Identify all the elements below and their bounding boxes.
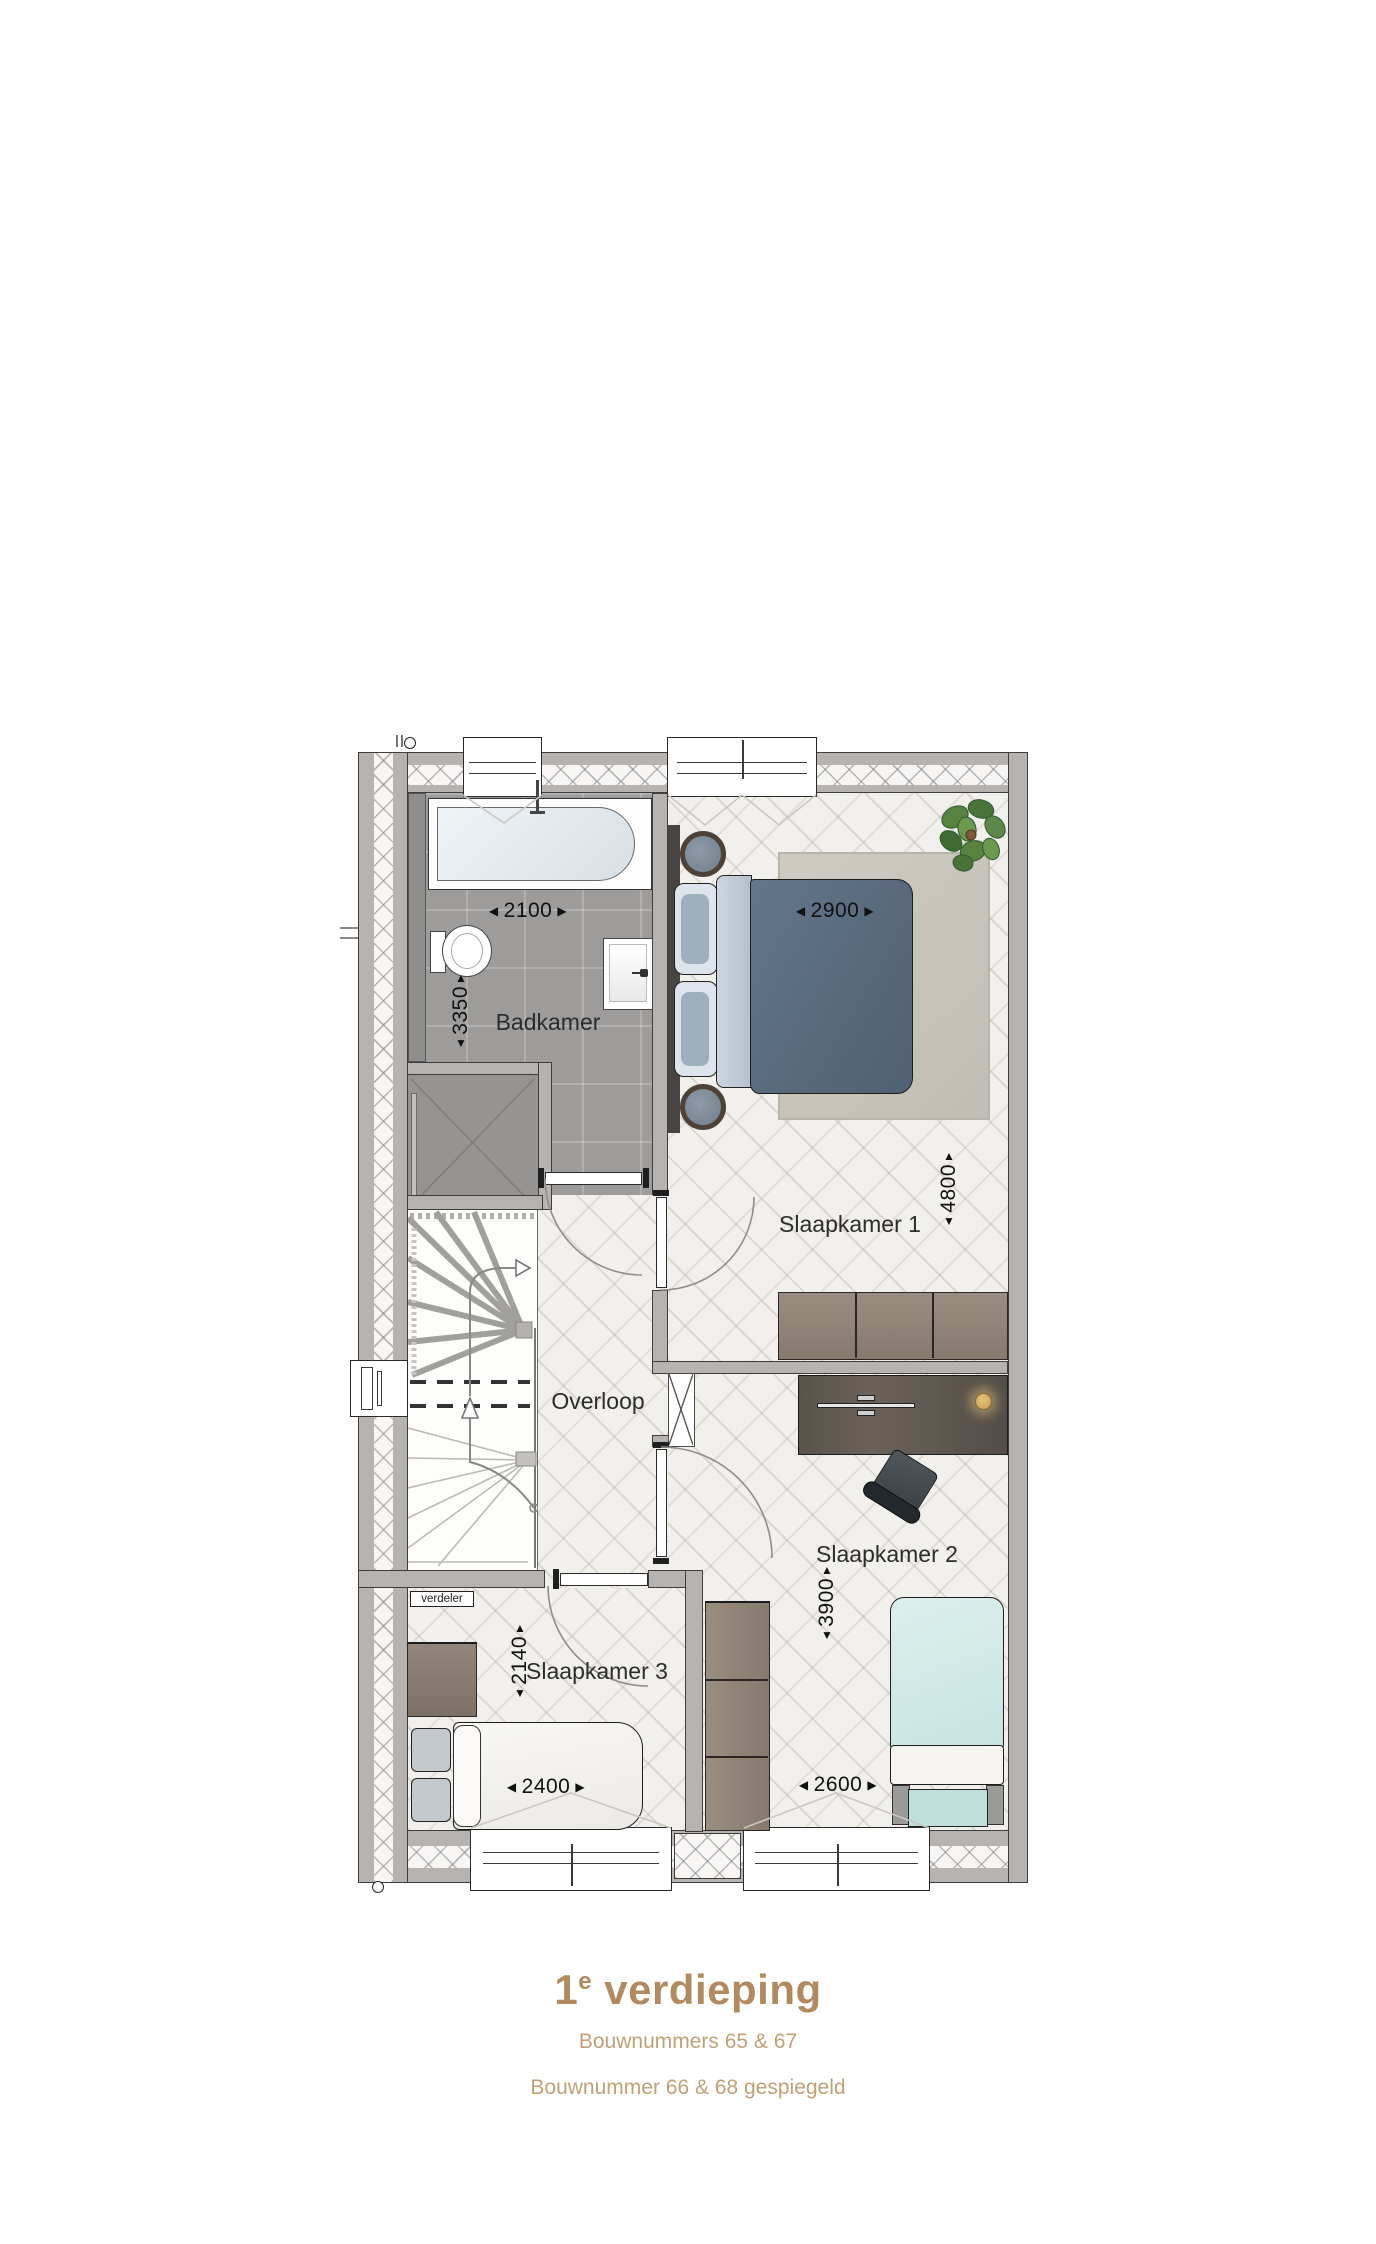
wardrobe-divider [855,1293,857,1358]
arrow-right-icon: ▶ [862,1778,882,1792]
subtitle-gespiegeld: Bouwnummer 66 & 68 gespiegeld [0,2076,1376,2100]
wall-shower-bottom [407,1195,543,1210]
tall-cabinet [705,1601,770,1831]
arrow-up-icon: ▲ [821,1565,833,1575]
dim-badkamer-width: ◀2100▶ [458,899,598,923]
arrow-down-icon: ▼ [455,1038,467,1048]
shower-diagonals-icon [407,1075,538,1210]
arrow-left-icon: ◀ [502,1780,522,1794]
plant-icon [933,795,1009,877]
door-badkamer [545,1172,642,1185]
stool [680,1084,726,1130]
page-title: 1e verdieping [0,1966,1376,2014]
verdeler-box: verdeler [410,1591,474,1607]
tick-mark [340,937,358,939]
wardrobe [778,1292,1008,1360]
wardrobe-divider [932,1293,934,1358]
stool [680,831,726,877]
door-jamb [538,1168,544,1188]
window-slaapkamer2 [743,1827,930,1891]
floor-plan: Badkamer Slaapkamer 1 Overloop Slaapkame… [358,735,1028,1907]
wall-badkamer-slaapkamer1 [652,793,668,1195]
pillow [674,981,718,1077]
shower-screen [411,1093,417,1197]
pillow-inner [681,894,709,964]
bathtub-basin [437,807,635,881]
door-slaapkamer2 [656,1449,667,1557]
window-mullion [742,740,744,778]
arrow-left-icon: ◀ [791,904,811,918]
caption: 1e verdieping Bouwnummers 65 & 67 Bouwnu… [0,1966,1376,2100]
dim-slaapkamer3-width: ◀2400▶ [476,1775,616,1799]
arrow-up-icon: ▲ [455,973,467,983]
desk-lamp-icon [975,1393,992,1410]
arrow-down-icon: ▼ [943,1216,955,1226]
shower-area [407,1062,552,1210]
sink-faucet-icon [632,972,642,974]
bed-sheet [716,875,752,1088]
bed-bench-post [986,1785,1004,1825]
bed-pillow [411,1778,451,1822]
dim-slaapkamer1-depth: ▲ 4800 ▼ [934,1151,964,1226]
window-mullion [571,1844,573,1886]
tick-mark [401,735,403,747]
bed-pillow [411,1728,451,1772]
door-slaapkamer3 [560,1573,648,1586]
wall-overloop-slaapkamer3 [358,1570,545,1588]
arrow-right-icon: ▶ [570,1780,590,1794]
wall-left [358,752,408,1883]
window-badkamer [463,737,542,797]
bed-duvet [890,1597,1004,1749]
arrow-up-icon: ▲ [514,1623,526,1633]
wall [407,1062,543,1075]
wall-pier [674,1833,741,1879]
wall-right [1008,752,1028,1883]
bed-headboard [668,825,680,1133]
survey-marker [404,737,416,749]
dim-badkamer-depth: ▲ 3350 ▼ [446,973,476,1048]
window-frame-line [469,762,537,763]
dim-slaapkamer2-depth: ▲ 3900 ▼ [812,1565,842,1640]
survey-marker [372,1881,384,1893]
sink [603,938,653,1010]
desk-handle [857,1395,875,1401]
arrow-right-icon: ▶ [552,904,572,918]
wall-slaapkamer2-slaapkamer3 [685,1570,703,1832]
arrow-left-icon: ◀ [484,904,504,918]
shower-floor [407,1075,538,1210]
dim-slaapkamer3-depth: ▲ 2140 ▼ [505,1623,535,1698]
pillow [674,883,718,975]
door-jamb [653,1558,669,1564]
wall-insulation [374,753,393,1882]
subtitle-bouwnummers: Bouwnummers 65 & 67 [0,2030,1376,2054]
door-jamb [643,1168,649,1188]
arrow-up-icon: ▲ [943,1151,955,1161]
window-frame-line [361,1367,373,1410]
bathroom-wall-lining [408,793,426,1062]
room-label-slaapkamer1: Slaapkamer 1 [760,1211,940,1238]
window-slaapkamer3 [470,1827,672,1891]
door-slaapkamer1 [656,1197,667,1288]
faucet-icon [530,811,545,814]
dim-slaapkamer2-width: ◀2600▶ [768,1773,908,1797]
dim-slaapkamer1-width: ◀2900▶ [765,899,905,923]
desk-handle [817,1403,915,1408]
toilet-seat [451,933,483,969]
window-stairwell [350,1360,408,1417]
cabinet-divider [706,1756,768,1758]
arrow-down-icon: ▼ [514,1688,526,1698]
bed-blanket [908,1789,988,1827]
tick-mark [396,735,398,747]
desk [798,1375,1008,1455]
door-jamb [653,1442,669,1448]
window-mullion [837,1844,839,1886]
bedside-cabinet [407,1642,477,1717]
window-frame-line [469,773,537,774]
wall-slaapkamer1-slaapkamer2 [652,1361,1008,1374]
faucet-icon [536,780,539,814]
arrow-down-icon: ▼ [821,1630,833,1640]
tick-mark [340,927,358,929]
wall-central-upper [652,1290,668,1363]
desk-handle [857,1410,875,1416]
arrow-left-icon: ◀ [794,1778,814,1792]
room-label-badkamer: Badkamer [478,1009,618,1036]
window-slaapkamer1 [667,737,817,797]
room-label-overloop: Overloop [518,1388,678,1415]
arrow-right-icon: ▶ [859,904,879,918]
window-frame-line [377,1371,382,1406]
pillow-inner [681,992,709,1066]
door-jamb [553,1569,559,1589]
cabinet-divider [706,1679,768,1681]
toilet [442,925,492,977]
door-jamb [653,1190,669,1196]
